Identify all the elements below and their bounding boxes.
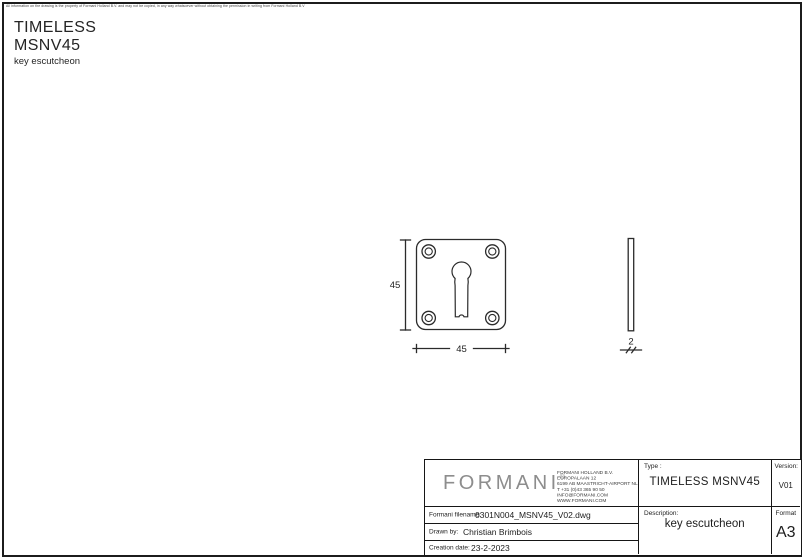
version-cell: Version: V01 xyxy=(772,460,801,507)
format-cell: Format A3 xyxy=(772,507,801,554)
keyhole-cutout xyxy=(452,262,471,317)
drawing-subtitle: key escutcheon xyxy=(14,56,80,67)
technical-drawing: 45 xyxy=(383,224,683,360)
type-label: Type : xyxy=(644,463,662,470)
screw-hole-bottom-right xyxy=(486,311,499,324)
formani-logo: FORMANI® xyxy=(443,472,565,495)
drawn-by-label: Drawn by: xyxy=(429,529,458,536)
filename-value: 0301N004_MSNV45_V02.dwg xyxy=(475,510,591,520)
front-view xyxy=(417,240,506,330)
title-block: FORMANI® FORMANI HOLLAND B.V. EUROPALAAN… xyxy=(424,459,802,556)
filename-label: Formani filename: xyxy=(429,512,481,519)
drawn-by-value: Christian Brimbois xyxy=(463,527,532,537)
creation-date-label: Creation date: xyxy=(429,544,470,551)
company-address: FORMANI HOLLAND B.V. EUROPALAAN 12 6199 … xyxy=(557,470,641,503)
screw-hole-bottom-left xyxy=(422,311,435,324)
escutcheon-plate xyxy=(417,240,506,330)
formani-logo-text: FORMANI xyxy=(443,472,560,494)
screw-hole-top-left xyxy=(422,245,435,258)
type-cell: Type : TIMELESS MSNV45 xyxy=(639,460,772,507)
thickness-dimension-label: 2 xyxy=(628,337,633,348)
drawing-sheet: All information on the drawing is the pr… xyxy=(0,0,804,559)
version-label: Version: xyxy=(775,463,799,470)
side-view xyxy=(628,239,634,331)
format-value: A3 xyxy=(772,524,801,542)
description-label: Description: xyxy=(644,510,678,517)
creation-date-value: 23-2-2023 xyxy=(471,543,510,553)
type-value: TIMELESS MSNV45 xyxy=(639,476,771,488)
width-dimension: 45 xyxy=(413,344,509,355)
height-dimension: 45 xyxy=(390,240,411,330)
version-value: V01 xyxy=(772,481,801,490)
screw-hole-top-right xyxy=(486,245,499,258)
drawing-title: TIMELESS MSNV45 xyxy=(14,19,96,54)
side-profile xyxy=(628,239,634,331)
title-block-logo-cell: FORMANI® FORMANI HOLLAND B.V. EUROPALAAN… xyxy=(425,460,639,507)
company-line: 6199 AB MAASTRICHT-AIRPORT NL xyxy=(557,481,641,487)
description-cell: Description: key escutcheon xyxy=(639,507,772,554)
height-dimension-label: 45 xyxy=(390,280,401,291)
company-line: WWW.FORMANI.COM xyxy=(557,498,641,504)
description-value: key escutcheon xyxy=(639,518,771,530)
drawn-by-cell: Drawn by: Christian Brimbois xyxy=(425,524,639,541)
title-model: MSNV45 xyxy=(14,37,96,55)
creation-date-cell: Creation date: 23-2-2023 xyxy=(425,541,639,554)
width-dimension-label: 45 xyxy=(456,344,467,355)
title-series: TIMELESS xyxy=(14,19,96,37)
copyright-disclaimer: All information on the drawing is the pr… xyxy=(6,4,305,8)
thickness-dimension: 2 xyxy=(621,337,642,353)
filename-cell: Formani filename: 0301N004_MSNV45_V02.dw… xyxy=(425,507,639,524)
format-label: Format xyxy=(776,510,797,517)
